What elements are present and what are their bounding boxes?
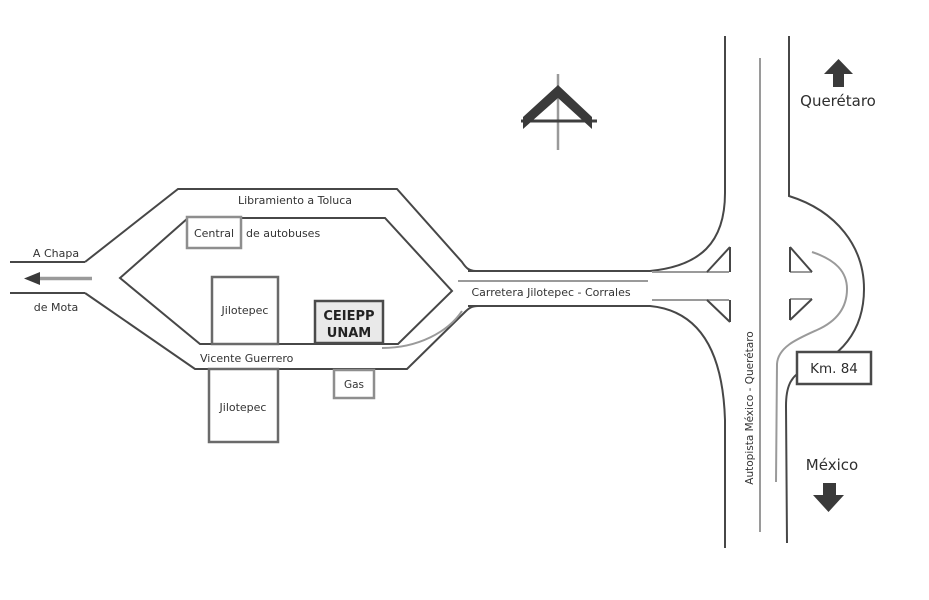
ceiepp-label-line2: UNAM	[327, 326, 371, 341]
gore-triangle-nw	[707, 247, 730, 272]
vicente-guerrero-merge-lane	[382, 311, 462, 348]
road-label-vicente-guerrero: Vicente Guerrero	[200, 352, 294, 365]
north-arrow-stem	[833, 72, 844, 87]
south-direction-arrow-icon	[813, 495, 844, 512]
gore-triangle-sw	[707, 300, 730, 322]
interchange-gore-triangles	[652, 247, 812, 322]
destination-west-label-line1: A Chapa	[33, 247, 79, 260]
south-arrow-stem	[823, 483, 836, 497]
road-label-autopista: Autopista México - Querétaro	[744, 331, 756, 484]
bus-station-boxed-word: Central	[194, 227, 234, 240]
destination-south-label: México	[806, 456, 858, 474]
highway-left-edge-north-ramp	[468, 36, 725, 271]
highway-left-edge-south-ramp	[468, 306, 725, 548]
road-label-carretera: Carretera Jilotepec - Corrales	[471, 286, 630, 299]
gas-station-label: Gas	[344, 379, 364, 391]
west-direction-arrow-icon	[24, 272, 40, 285]
gore-triangle-se	[790, 299, 812, 320]
destination-north-label: Querétaro	[800, 92, 876, 110]
km-84-label: Km. 84	[810, 361, 858, 377]
jilotepec-lower-label: Jilotepec	[219, 401, 267, 414]
jilotepec-upper-label: Jilotepec	[221, 304, 269, 317]
map-canvas: Querétaro México A Chapa de Mota Librami…	[0, 0, 929, 600]
ceiepp-label-line1: CEIEPP	[323, 309, 374, 324]
road-label-libramiento: Libramiento a Toluca	[238, 194, 352, 207]
queretaro-direction	[824, 59, 853, 87]
gore-triangle-ne	[790, 247, 812, 272]
north-direction-arrow-icon	[824, 59, 853, 74]
north-compass-icon	[521, 74, 597, 150]
mexico-direction	[813, 483, 844, 512]
destination-west-label-line2: de Mota	[34, 301, 79, 314]
bus-station-rest-word: de autobuses	[246, 227, 320, 240]
sketch-map: Querétaro México A Chapa de Mota Librami…	[0, 0, 929, 600]
chapa-de-mota-road	[10, 262, 92, 293]
